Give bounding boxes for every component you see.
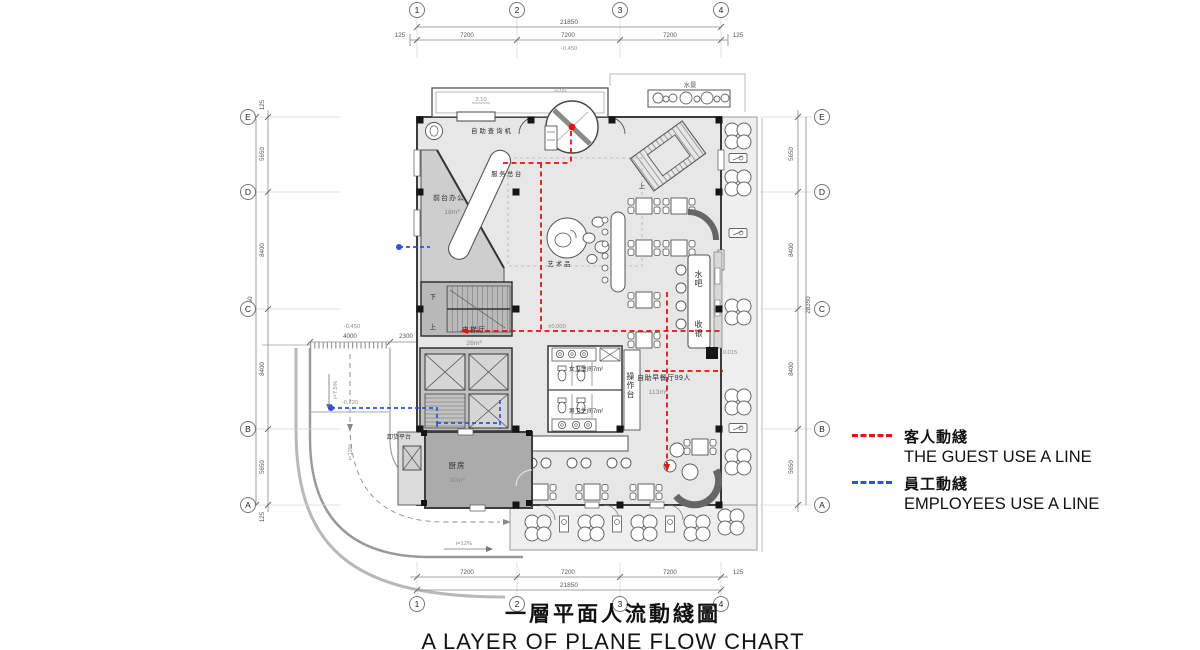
floor-plan-sheet: 4000 2300 -0.450 -0.720 i=7.5% i=12% i=1… xyxy=(0,0,1200,650)
dim-top-overall: 21850 xyxy=(560,19,578,26)
water-bar-label: 水吧 xyxy=(694,270,702,288)
grid-bubble-2-top: 2 xyxy=(515,5,520,15)
dim-top-seg2: 7200 xyxy=(561,32,575,39)
dims-bottom: 7200 7200 7200 125 21850 xyxy=(410,569,744,593)
ramp-site-level: -0.450 xyxy=(344,324,360,330)
drawing-title-en: A LAYER OF PLANE FLOW CHART xyxy=(330,629,896,650)
dim-top-end-right: 125 xyxy=(733,32,744,39)
dim-right-ed: 5650 xyxy=(788,147,795,161)
dim-right-overall: 28350 xyxy=(805,296,812,314)
buffet-label: 自助早餐厅99人 xyxy=(637,373,691,382)
dim-bot-seg2: 7200 xyxy=(561,569,575,576)
water-feature-label: 水景 xyxy=(684,80,697,89)
dims-top: 21850 7200 7200 7200 125 125 -0.450 xyxy=(395,19,744,52)
dim-top-seg3: 7200 xyxy=(663,32,677,39)
drawing-title: 一層平面人流動綫圖 A LAYER OF PLANE FLOW CHART xyxy=(330,598,896,650)
office-area: 18m² xyxy=(444,209,460,216)
entry-level: -0.05 xyxy=(553,88,566,94)
lift-hall-area: 26m² xyxy=(466,340,482,347)
drive-slope-label-h: i=12% xyxy=(456,541,472,547)
buffet-area: 113m² xyxy=(649,389,668,396)
office-label: 前台办公 xyxy=(433,193,465,202)
ramp-width-dim: 4000 xyxy=(343,333,357,340)
grid-bubble-b-left: B xyxy=(245,424,251,434)
feature-stair-up: 上 xyxy=(639,181,646,190)
dims-right: 5650 8400 8400 5650 28350 xyxy=(788,110,812,512)
grid-bubble-3-top: 3 xyxy=(618,5,623,15)
canopy-level: 3.10 xyxy=(475,97,486,103)
grid-bubble-e-right: E xyxy=(819,112,825,122)
grid-bubble-a-right: A xyxy=(819,500,825,510)
guest-line-swatch xyxy=(852,434,892,437)
grid-bubble-a-left: A xyxy=(245,500,251,510)
wc-female-label: 女卫生间7m² xyxy=(569,365,603,373)
dim-right-dc: 8400 xyxy=(788,243,795,257)
ramp-offset-dim: 2300 xyxy=(399,333,413,340)
lift-bank xyxy=(420,348,512,431)
kitchen-label: 厨房 xyxy=(449,460,466,470)
site-level-top: -0.450 xyxy=(561,46,577,52)
counter-label: 操作台 xyxy=(626,372,634,399)
employee-flow-dot-2 xyxy=(328,405,334,411)
dim-top-end-left: 125 xyxy=(395,32,406,39)
legend-employee-row: 員工動綫 EMPLOYEES USE A LINE xyxy=(852,473,1112,514)
kitchen-area: 30m² xyxy=(449,477,465,484)
legend: 客人動綫 THE GUEST USE A LINE 員工動綫 EMPLOYEES… xyxy=(852,426,1112,520)
legend-guest-row: 客人動綫 THE GUEST USE A LINE xyxy=(852,426,1112,467)
dim-bot-seg3: 7200 xyxy=(663,569,677,576)
ramp-slope-label: i=7.5% xyxy=(333,381,339,399)
reception-label: 服务总台 xyxy=(491,169,523,178)
interior-level: ±0.000 xyxy=(548,324,566,330)
dim-left-end-top: 125 xyxy=(259,99,266,110)
dim-left-ed: 5650 xyxy=(259,147,266,161)
stair-up-label: 上 xyxy=(430,322,437,331)
grid-bubble-d-right: D xyxy=(819,187,825,197)
grid-bubble-c-right: C xyxy=(819,304,825,314)
drive-slope-label-v: i=12% xyxy=(348,444,354,460)
drawing-title-zh: 一層平面人流動綫圖 xyxy=(330,598,896,628)
employee-line-swatch xyxy=(852,481,892,484)
dim-left-end-bot: 125 xyxy=(259,511,266,522)
unloading-label: 卸货平台 xyxy=(387,433,411,441)
dim-left-cb: 8400 xyxy=(259,362,266,376)
dim-left-ba: 5650 xyxy=(259,460,266,474)
grid-bubble-4-top: 4 xyxy=(719,5,724,15)
grid-bubble-b-right: B xyxy=(819,424,825,434)
legend-employee-en: EMPLOYEES USE A LINE xyxy=(904,495,1099,514)
floor-plan-drawing: 4000 2300 -0.450 -0.720 i=7.5% i=12% i=1… xyxy=(0,0,1200,650)
ramp-low-level: -0.720 xyxy=(342,400,358,406)
cashier-label: 收银 xyxy=(694,320,702,338)
dim-right-ba: 5650 xyxy=(788,460,795,474)
grid-bubble-c-left: C xyxy=(245,304,251,314)
legend-employee-zh: 員工動綫 xyxy=(904,473,1099,494)
inquiry-label: 自助查询机 xyxy=(471,126,513,135)
dim-left-dc: 8400 xyxy=(259,243,266,257)
legend-guest-zh: 客人動綫 xyxy=(904,426,1092,447)
stair-down-label: 下 xyxy=(430,293,437,301)
dim-bot-overall: 21850 xyxy=(560,582,578,589)
grid-bubble-e-left: E xyxy=(245,112,251,122)
legend-guest-en: THE GUEST USE A LINE xyxy=(904,448,1092,467)
wc-male-label: 男卫生间7m² xyxy=(569,407,603,415)
dim-bot-seg1: 7200 xyxy=(460,569,474,576)
dim-bot-end-right: 125 xyxy=(733,569,744,576)
art-label: 艺术品 xyxy=(547,259,572,268)
employee-flow-dot-1 xyxy=(396,244,402,250)
grid-bubble-d-left: D xyxy=(245,187,251,197)
dim-top-seg1: 7200 xyxy=(460,32,474,39)
terrace-level: -0.015 xyxy=(721,350,737,356)
grid-bubble-1-top: 1 xyxy=(415,5,420,15)
kitchen: 厨房 30m² 卸货平台 xyxy=(387,429,532,511)
dim-right-cb: 8400 xyxy=(788,362,795,376)
